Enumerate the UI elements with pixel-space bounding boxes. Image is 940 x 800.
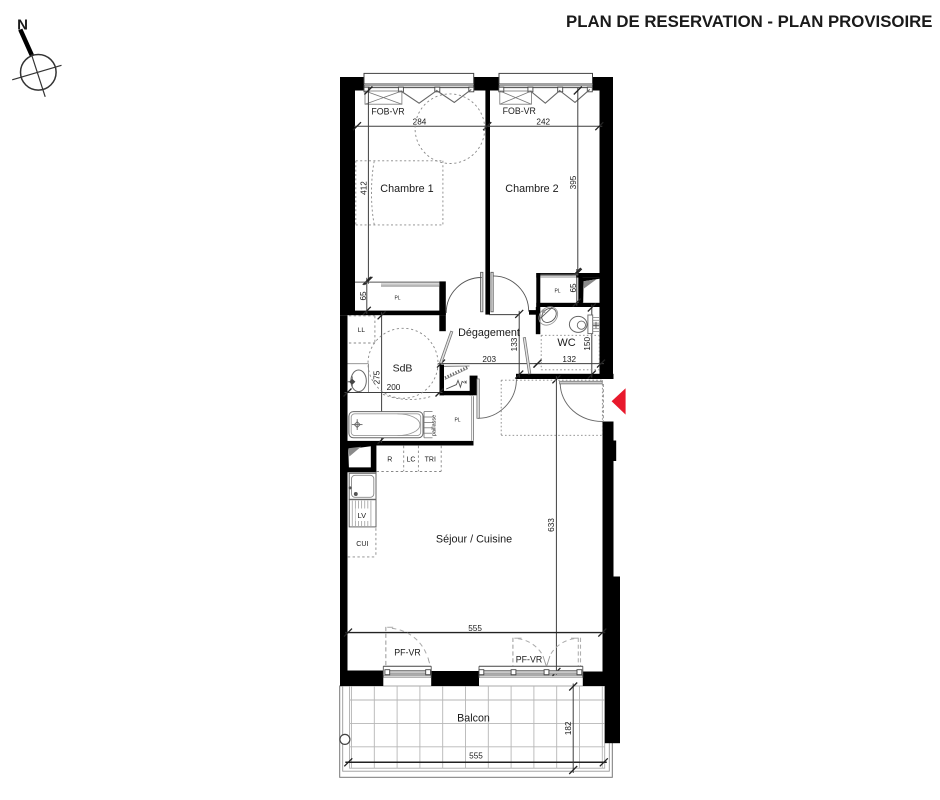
svg-text:284: 284: [413, 118, 427, 127]
svg-text:PL: PL: [394, 296, 400, 302]
svg-text:FOB-VR: FOB-VR: [503, 106, 536, 116]
svg-text:65: 65: [359, 291, 368, 301]
svg-text:PF-VR: PF-VR: [516, 654, 542, 664]
svg-text:CUI: CUI: [356, 541, 368, 548]
svg-text:PL: PL: [554, 288, 560, 294]
svg-text:412: 412: [360, 181, 369, 195]
svg-text:Dégagement: Dégagement: [458, 327, 520, 339]
svg-text:395: 395: [569, 175, 578, 189]
svg-text:200: 200: [387, 383, 401, 392]
svg-text:555: 555: [469, 752, 483, 761]
svg-text:LL: LL: [358, 327, 366, 334]
svg-text:Balcon: Balcon: [457, 713, 490, 725]
svg-text:PL: PL: [454, 418, 460, 424]
svg-text:Chambre 1: Chambre 1: [380, 183, 433, 195]
svg-text:242: 242: [536, 118, 550, 127]
svg-text:555: 555: [468, 624, 482, 633]
svg-text:FOB-VR: FOB-VR: [371, 106, 404, 116]
svg-text:R: R: [387, 456, 392, 463]
svg-text:133: 133: [510, 337, 519, 351]
svg-text:132: 132: [562, 355, 576, 364]
svg-text:150: 150: [583, 337, 592, 351]
svg-text:WC: WC: [557, 337, 575, 349]
svg-text:Séjour / Cuisine: Séjour / Cuisine: [436, 533, 512, 545]
svg-text:PF-VR: PF-VR: [394, 648, 420, 658]
svg-text:LC: LC: [407, 456, 416, 463]
svg-text:TRI: TRI: [425, 456, 436, 463]
svg-text:65: 65: [569, 283, 578, 293]
svg-text:275: 275: [373, 370, 382, 384]
svg-text:SdB: SdB: [393, 363, 413, 375]
svg-text:paillasse: paillasse: [432, 415, 438, 436]
svg-text:PLAN DE RESERVATION - PLAN PRO: PLAN DE RESERVATION - PLAN PROVISOIRE: [566, 12, 932, 31]
svg-text:633: 633: [547, 518, 556, 532]
svg-text:203: 203: [482, 355, 496, 364]
svg-text:182: 182: [564, 721, 573, 735]
svg-text:LV: LV: [357, 511, 366, 520]
svg-text:Chambre 2: Chambre 2: [505, 183, 558, 195]
